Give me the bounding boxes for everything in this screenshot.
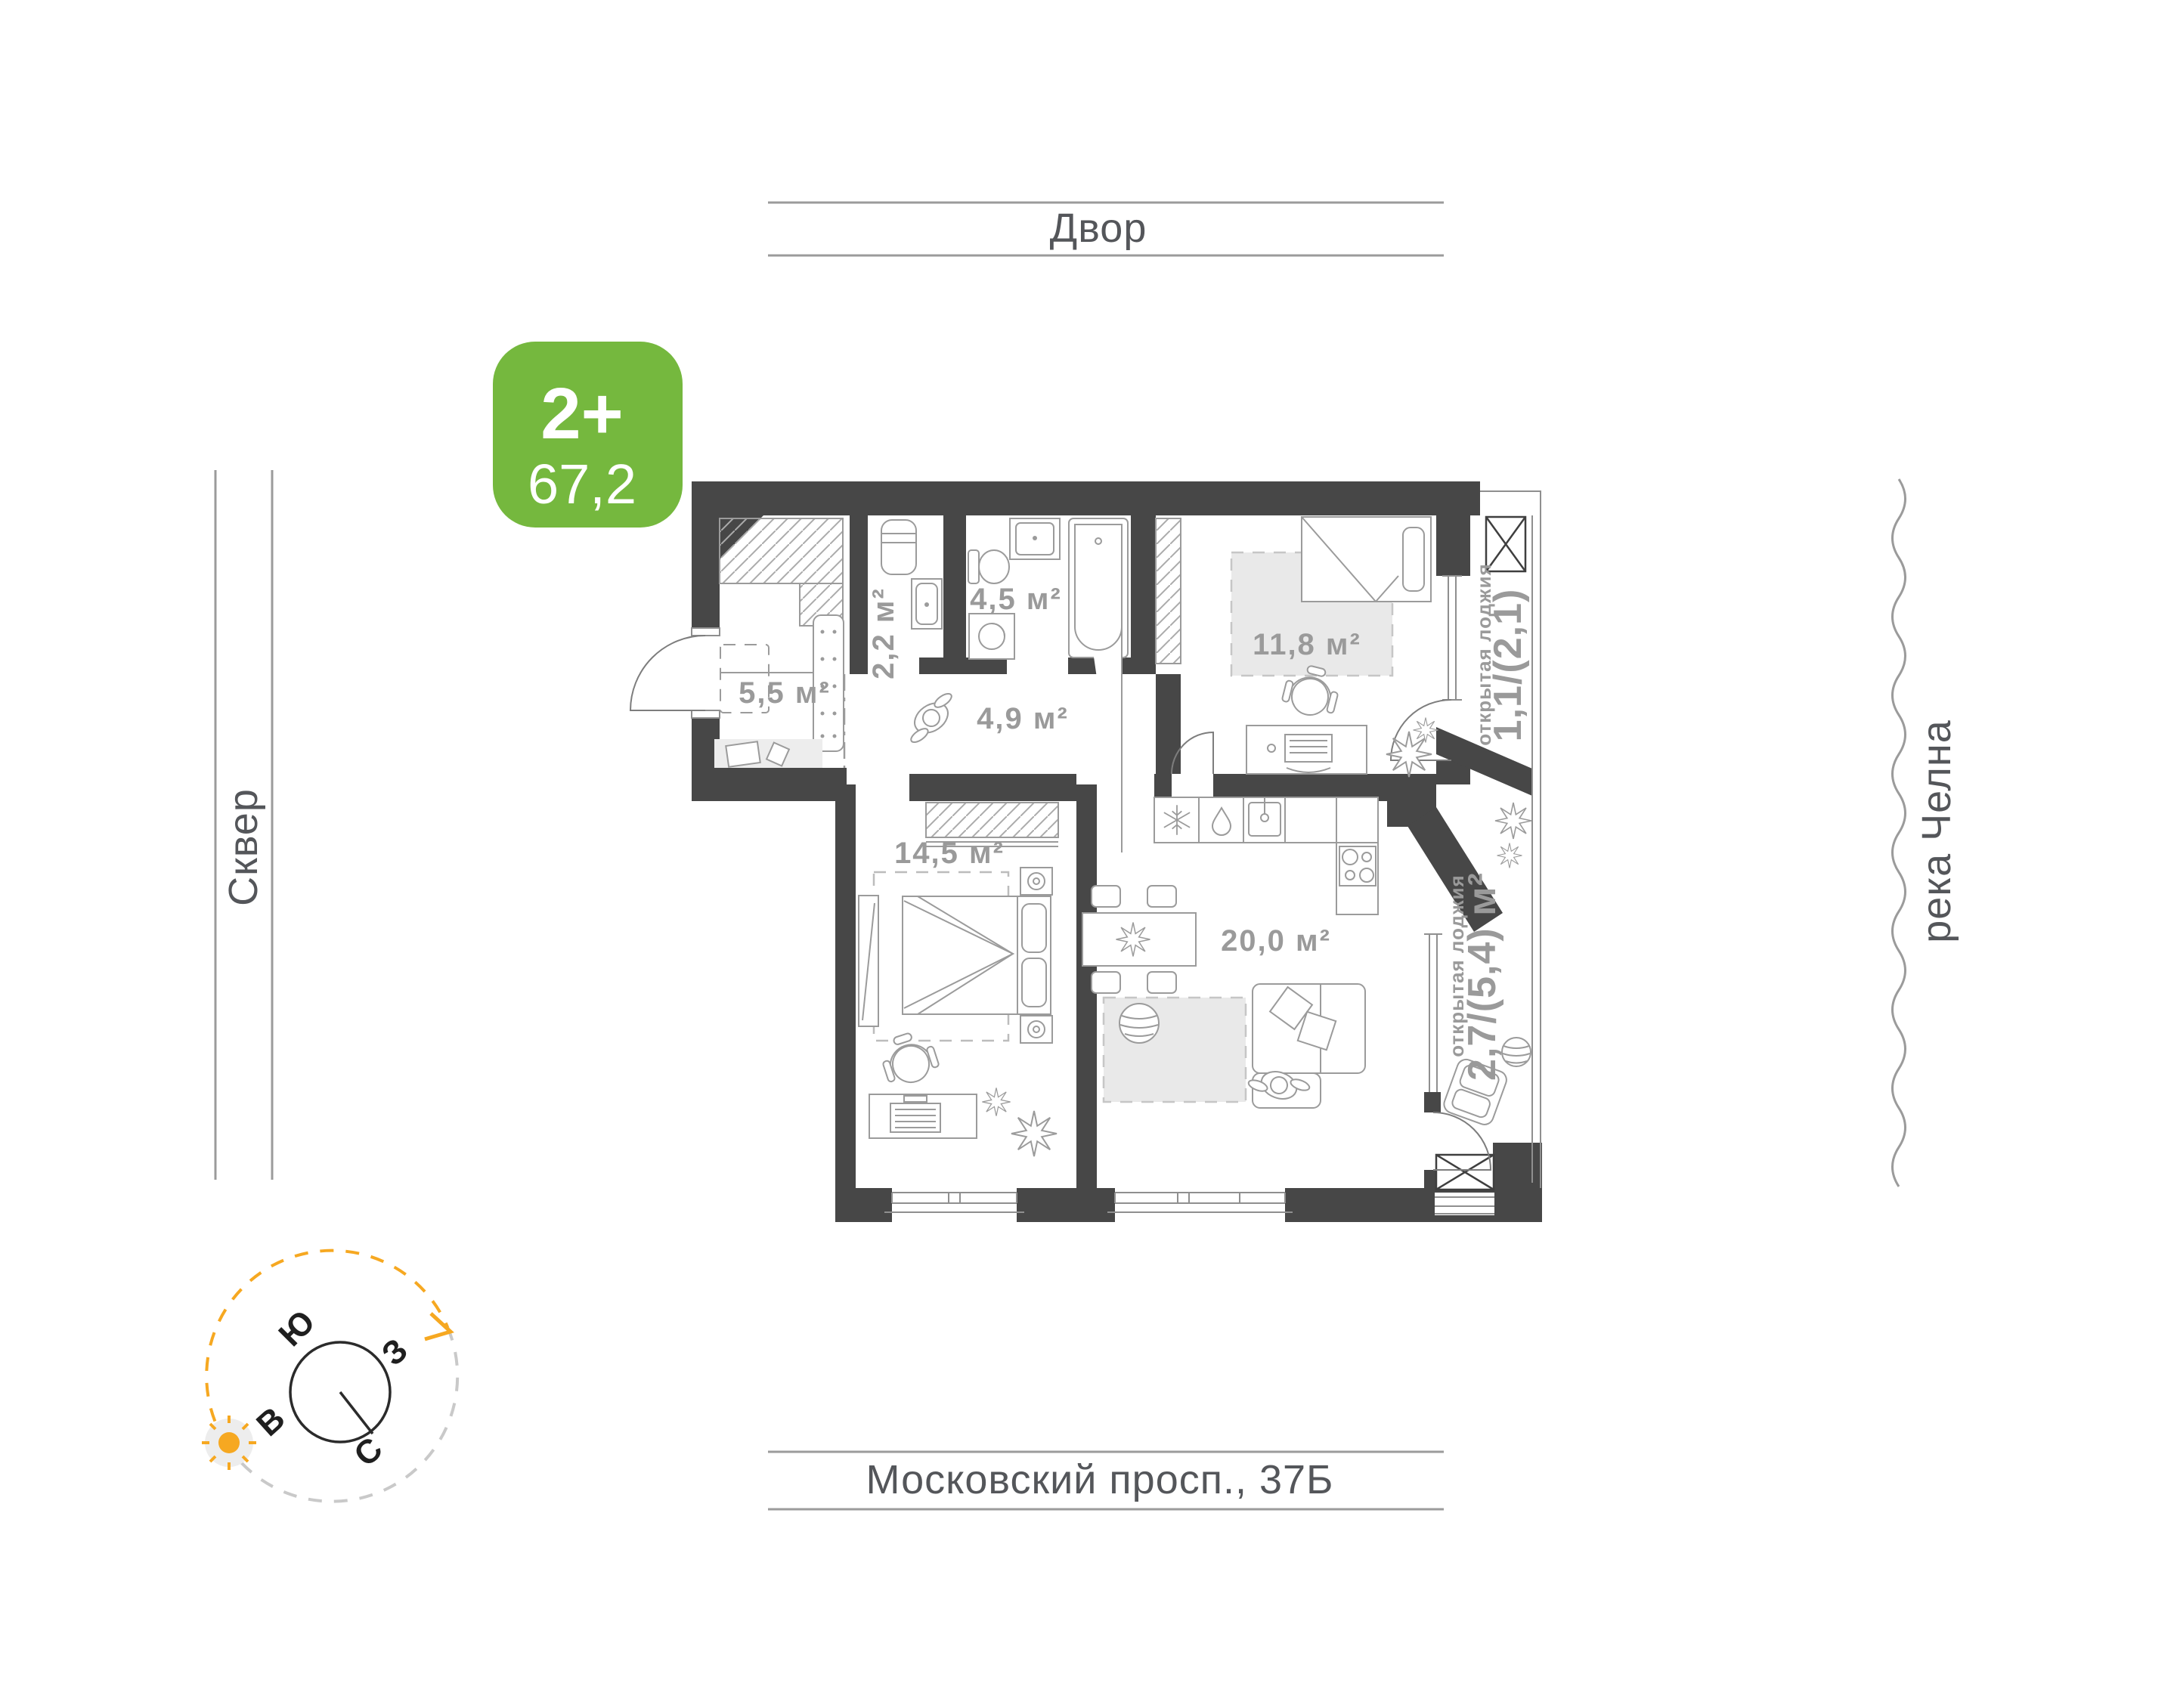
room-label-dressing: 2,2 м² <box>867 587 900 679</box>
dressing-sink <box>912 579 942 629</box>
window-master-bedroom <box>884 1193 1024 1212</box>
entry-bench <box>714 739 822 768</box>
nightstand <box>1020 1016 1052 1043</box>
built-in-closet <box>1156 518 1181 664</box>
window-bedroom-loggia <box>1442 576 1462 700</box>
compass-east-label: В <box>249 1400 292 1443</box>
plant <box>1414 718 1438 743</box>
street-label: Московский просп., 37Б <box>866 1457 1334 1502</box>
river-guide: река Челна <box>1893 479 1960 1187</box>
plant <box>1011 1111 1057 1156</box>
room-label-bathroom: 4,5 м² <box>970 583 1062 616</box>
wardrobe <box>926 803 1058 837</box>
room-dressing: 2,2 м² <box>867 520 942 679</box>
room-kitchen-living: 20,0 м² <box>1082 797 1378 1108</box>
loggia-bottom-window <box>1435 1193 1494 1215</box>
toilet <box>968 550 1009 583</box>
compass: Ю З В С <box>202 1251 457 1502</box>
kitchen-sink <box>1249 797 1280 836</box>
nightstand <box>1020 868 1052 895</box>
room-hallway: 5,5 м² <box>714 518 844 768</box>
badge-rooms-label: 2+ <box>540 373 623 454</box>
floorplan-page: Двор Московский просп., 37Б Сквер река Ч… <box>0 0 2177 1708</box>
plant <box>1497 843 1522 868</box>
river-wave <box>1893 479 1906 1187</box>
coffee-table <box>1119 1004 1159 1043</box>
loggia-top: открытая лоджия 1,1/(2,1) <box>1472 563 1530 745</box>
plant <box>1116 923 1150 957</box>
bathroom-sink <box>1010 518 1060 559</box>
sun-icon <box>202 1416 256 1470</box>
desk <box>1246 726 1367 774</box>
apartment-badge: 2+ 67,2 <box>493 342 683 528</box>
ball <box>1502 1038 1531 1066</box>
street-guide: Московский просп., 37Б <box>768 1452 1444 1509</box>
room-label-kitchen-living: 20,0 м² <box>1221 924 1331 958</box>
courtyard-label: Двор <box>1050 206 1147 251</box>
park-guide: Сквер <box>215 470 272 1180</box>
courtyard-guide: Двор <box>768 203 1444 255</box>
mirror <box>859 896 878 1026</box>
arrow-icon <box>425 1313 451 1339</box>
built-in-wardrobe <box>720 518 843 583</box>
entry-door <box>630 628 720 718</box>
double-bed <box>903 896 1051 1014</box>
window-living-room <box>1107 1193 1293 1212</box>
room-label-bedroom-master: 14,5 м² <box>894 837 1005 870</box>
washing-machine <box>969 614 1014 659</box>
badge-area-value: 67,2 <box>528 453 636 515</box>
plant <box>1495 803 1531 839</box>
window-kitchen-loggia <box>1424 934 1442 1092</box>
floor-plan-canvas: Двор Московский просп., 37Б Сквер река Ч… <box>0 0 2177 1708</box>
single-bed <box>1302 517 1431 602</box>
person-figure <box>900 691 962 746</box>
park-label: Сквер <box>221 788 266 906</box>
room-label-bedroom-small: 11,8 м² <box>1253 628 1361 661</box>
office-chair <box>876 1027 941 1089</box>
dining-table <box>1082 886 1196 993</box>
room-label-hallway: 5,5 м² <box>739 676 831 710</box>
room-corridor: 4,9 м² <box>900 691 1069 746</box>
desk <box>869 1094 977 1138</box>
river-label: река Челна <box>1914 719 1959 943</box>
room-bedroom-master: 14,5 м² <box>859 803 1058 1156</box>
cabinet <box>881 520 916 574</box>
loggia-bottom-area-label: 2,7/(5,4) м² <box>1460 872 1504 1081</box>
stove <box>1339 846 1376 886</box>
loggia-top-area-label: 1,1/(2,1) <box>1486 589 1530 742</box>
plant <box>982 1088 1010 1115</box>
kitchen-counter <box>1154 797 1378 914</box>
room-label-corridor: 4,9 м² <box>977 702 1069 735</box>
compass-south-label: Ю <box>271 1303 322 1354</box>
